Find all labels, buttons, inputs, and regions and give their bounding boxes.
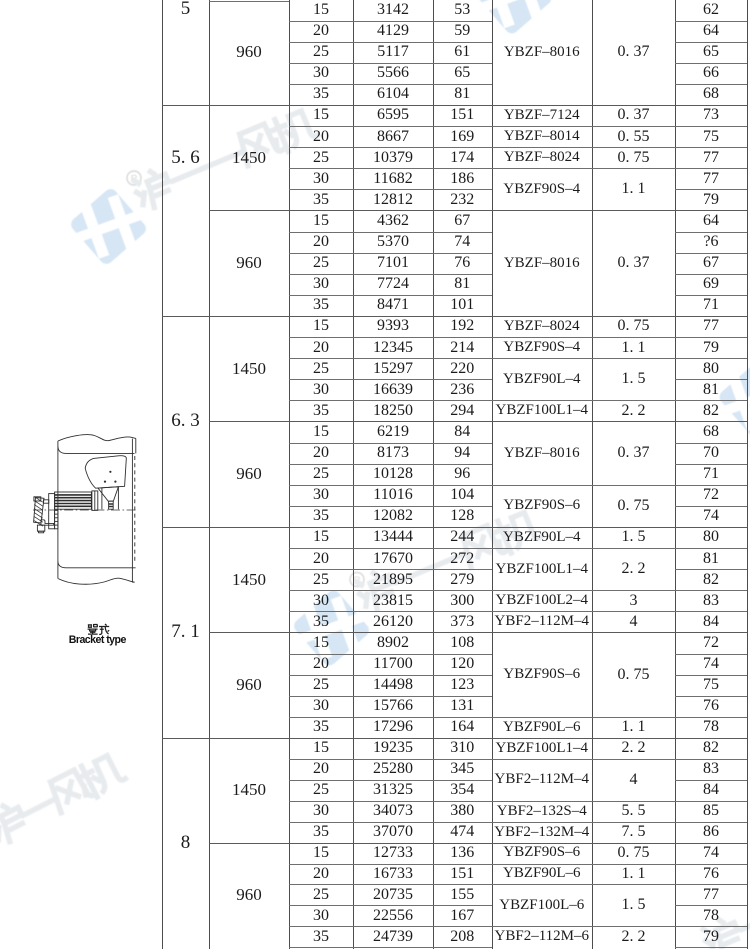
svg-text:Bracket type: Bracket type <box>69 634 127 646</box>
